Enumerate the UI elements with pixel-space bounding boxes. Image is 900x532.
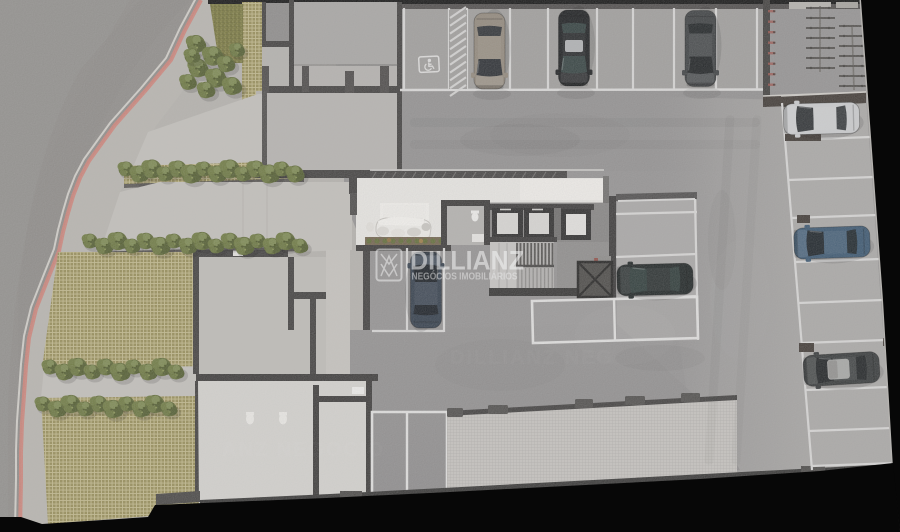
svg-text:DILLIANZ NEG: DILLIANZ NEG — [450, 347, 614, 369]
svg-text:NEGÓCIOS IMOBILIÁRIOS: NEGÓCIOS IMOBILIÁRIOS — [412, 270, 518, 283]
svg-text:ANZ NEGOCIO: ANZ NEGOCIO — [222, 439, 385, 461]
